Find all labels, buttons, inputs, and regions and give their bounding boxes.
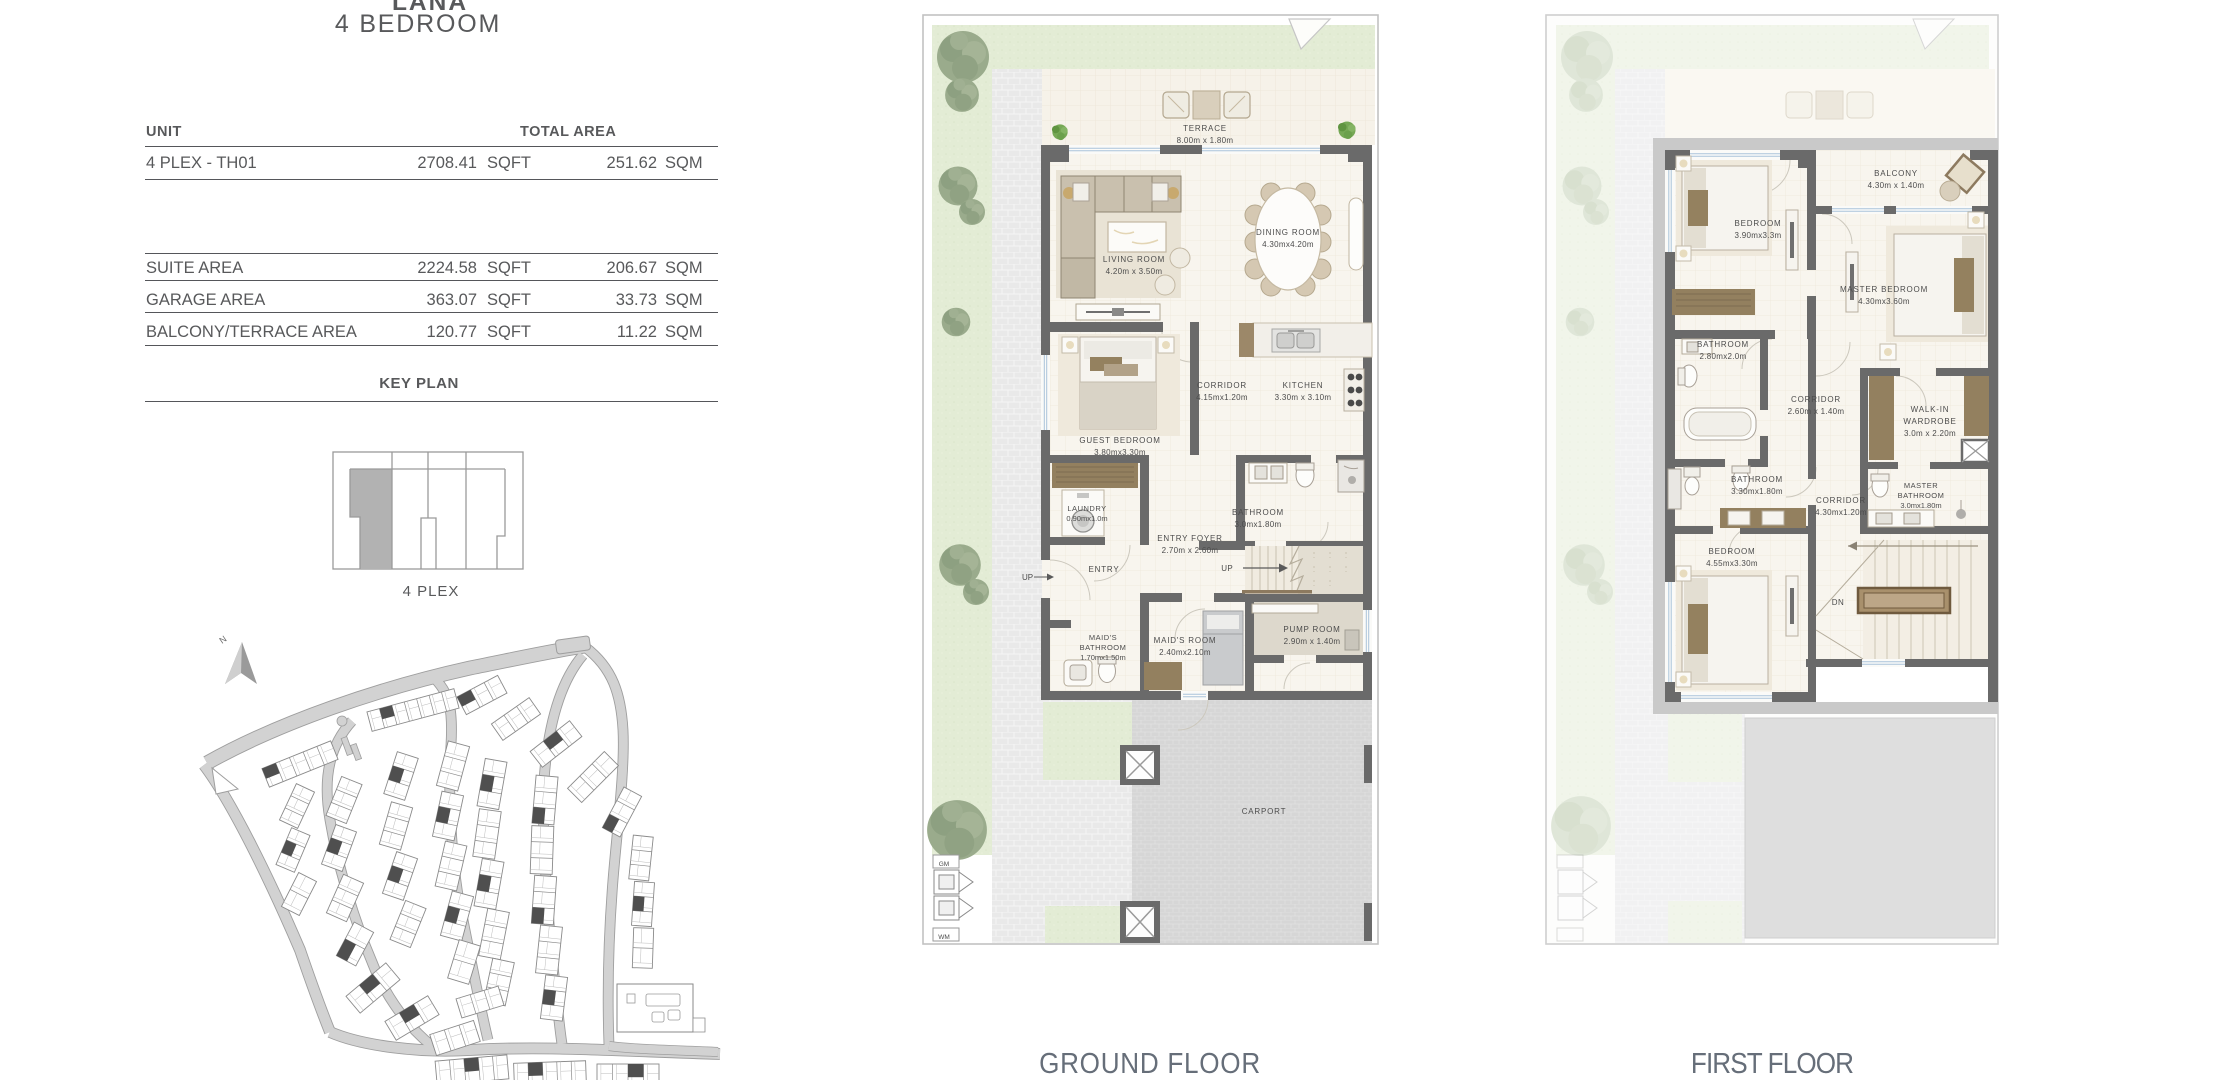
svg-text:2.70m x 2.60m: 2.70m x 2.60m	[1162, 546, 1219, 555]
svg-text:3.0mx1.80m: 3.0mx1.80m	[1900, 501, 1941, 510]
svg-text:4.30mx1.20m: 4.30mx1.20m	[1815, 508, 1867, 517]
svg-text:2.60m x 1.40m: 2.60m x 1.40m	[1788, 407, 1845, 416]
svg-text:BATHROOM: BATHROOM	[1731, 475, 1783, 484]
svg-text:MAID'S: MAID'S	[1089, 633, 1117, 642]
svg-text:0.90mx1.0m: 0.90mx1.0m	[1066, 514, 1107, 523]
svg-text:8.00m x 1.80m: 8.00m x 1.80m	[1177, 136, 1234, 145]
svg-text:3.30m x 3.10m: 3.30m x 3.10m	[1275, 393, 1332, 402]
svg-text:N: N	[217, 634, 228, 646]
svg-text:3.90mx3.3m: 3.90mx3.3m	[1734, 231, 1781, 240]
svg-text:GM: GM	[939, 861, 949, 868]
svg-text:3.30mx1.80m: 3.30mx1.80m	[1731, 487, 1783, 496]
svg-text:KITCHEN: KITCHEN	[1283, 381, 1324, 390]
svg-text:4.30mx4.20m: 4.30mx4.20m	[1262, 240, 1314, 249]
svg-text:3.80mx3.30m: 3.80mx3.30m	[1094, 448, 1146, 457]
svg-text:CARPORT: CARPORT	[1242, 807, 1287, 816]
svg-text:BATHROOM: BATHROOM	[1898, 491, 1945, 500]
svg-text:WM: WM	[938, 934, 950, 941]
svg-text:4.20m x 3.50m: 4.20m x 3.50m	[1106, 267, 1163, 276]
svg-text:LAUNDRY: LAUNDRY	[1067, 504, 1106, 513]
svg-text:MASTER: MASTER	[1904, 481, 1938, 490]
svg-text:BALCONY: BALCONY	[1874, 169, 1918, 178]
svg-text:BEDROOM: BEDROOM	[1735, 219, 1782, 228]
svg-text:MAID'S ROOM: MAID'S ROOM	[1154, 636, 1217, 645]
svg-text:ENTRY FOYER: ENTRY FOYER	[1157, 534, 1222, 543]
svg-text:BATHROOM: BATHROOM	[1080, 643, 1127, 652]
svg-text:ENTRY: ENTRY	[1089, 565, 1120, 574]
svg-text:WARDROBE: WARDROBE	[1903, 417, 1956, 426]
svg-text:WALK-IN: WALK-IN	[1911, 405, 1950, 414]
svg-text:3.0m x 2.20m: 3.0m x 2.20m	[1904, 429, 1956, 438]
svg-text:GUEST BEDROOM: GUEST BEDROOM	[1079, 436, 1160, 445]
svg-text:4.30m x 1.40m: 4.30m x 1.40m	[1868, 181, 1925, 190]
svg-text:4.15mx1.20m: 4.15mx1.20m	[1196, 393, 1248, 402]
svg-text:MASTER BEDROOM: MASTER BEDROOM	[1840, 285, 1928, 294]
svg-text:2.80mx2.0m: 2.80mx2.0m	[1699, 352, 1746, 361]
svg-text:3.0mx1.80m: 3.0mx1.80m	[1234, 520, 1281, 529]
svg-text:LIVING ROOM: LIVING ROOM	[1103, 255, 1165, 264]
svg-text:2.90m x 1.40m: 2.90m x 1.40m	[1284, 637, 1341, 646]
svg-text:CORRIDOR: CORRIDOR	[1197, 381, 1247, 390]
svg-text:UP: UP	[1221, 564, 1233, 573]
svg-text:4.30mx3.60m: 4.30mx3.60m	[1858, 297, 1910, 306]
svg-text:4.55mx3.30m: 4.55mx3.30m	[1706, 559, 1758, 568]
svg-text:PUMP ROOM: PUMP ROOM	[1283, 625, 1340, 634]
svg-text:4 PLEX: 4 PLEX	[403, 583, 460, 600]
svg-text:BATHROOM: BATHROOM	[1232, 508, 1284, 517]
svg-text:UP: UP	[1022, 573, 1033, 582]
svg-text:1.70mx1.50m: 1.70mx1.50m	[1080, 653, 1125, 662]
svg-text:DINING ROOM: DINING ROOM	[1256, 228, 1320, 237]
svg-text:BEDROOM: BEDROOM	[1709, 547, 1756, 556]
svg-text:DN: DN	[1832, 598, 1845, 607]
svg-text:BATHROOM: BATHROOM	[1697, 340, 1749, 349]
svg-text:CORRIDOR: CORRIDOR	[1816, 496, 1866, 505]
svg-text:CORRIDOR: CORRIDOR	[1791, 395, 1841, 404]
svg-text:TERRACE: TERRACE	[1183, 124, 1227, 133]
svg-text:2.40mx2.10m: 2.40mx2.10m	[1159, 648, 1211, 657]
